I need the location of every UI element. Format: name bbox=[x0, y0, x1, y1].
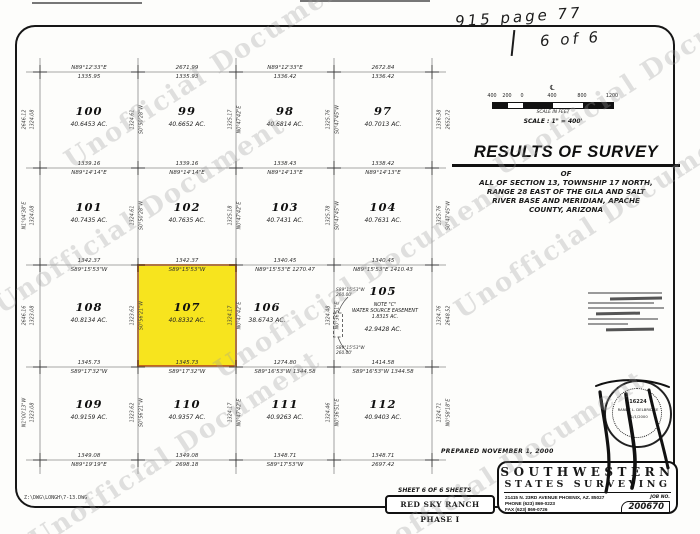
seal-date: 11/1/2000 bbox=[606, 414, 670, 419]
scale-ratio-label: SCALE : 1" = 400' bbox=[492, 118, 614, 125]
edge-label: 1324.76 bbox=[438, 293, 443, 339]
interior-line-label: N0°47'42"E bbox=[238, 293, 243, 339]
boundary-label: 1348.712697.42 bbox=[338, 452, 428, 469]
interior-line-label: 1325.17 bbox=[229, 97, 234, 143]
lot-97: 9740.7013 AC. bbox=[338, 104, 428, 128]
prepared-date-note: PREPARED NOVEMBER 1, 2000 bbox=[441, 448, 554, 455]
interior-line-label: N0°47'42"E bbox=[238, 97, 243, 143]
edge-label: 1323.08 bbox=[31, 390, 36, 436]
boundary-label: 1348.71S89°17'53"W bbox=[240, 452, 330, 469]
seal-inner-ring bbox=[612, 388, 662, 438]
edge-label: 2646.16 bbox=[23, 293, 28, 339]
interior-line-label: 1325.78 bbox=[327, 193, 332, 239]
surveyor-seal: 16224 RANDY L. DELBRIDGE 11/1/2000 bbox=[604, 380, 672, 448]
boundary-label: 1342.37S89°15'53"W bbox=[44, 257, 134, 274]
seal-name: RANDY L. DELBRIDGE bbox=[606, 407, 670, 412]
lot-112: 11240.9403 AC. bbox=[338, 397, 428, 421]
interior-line-label: N0°47'42"E bbox=[238, 390, 243, 436]
firm-name-line2: STATES SURVEYING bbox=[499, 479, 676, 490]
lot-99: 9940.6652 AC. bbox=[142, 104, 232, 128]
boundary-label: N89°12'33"E1336.42 bbox=[240, 64, 330, 81]
lot-107-highlighted: 10740.8332 AC. bbox=[142, 300, 232, 324]
interior-line-label: 1323.62 bbox=[131, 293, 136, 339]
recorder-certification-block bbox=[588, 292, 670, 333]
lot-111: 11140.9263 AC. bbox=[240, 397, 330, 421]
edge-label: N1°04'38"E bbox=[23, 193, 28, 239]
edge-label: 2646.12 bbox=[23, 97, 28, 143]
interior-line-label: 1323.62 bbox=[131, 390, 136, 436]
boundary-label: 1342.37S89°15'53"W bbox=[142, 257, 232, 274]
job-number-value: 200670 bbox=[621, 501, 671, 513]
scale-tick: 200 bbox=[502, 94, 511, 99]
lot-103: 10340.7431 AC. bbox=[240, 200, 330, 224]
survey-description-line: ALL OF SECTION 13, TOWNSHIP 17 NORTH, bbox=[452, 178, 680, 187]
interior-line-label: S0°56'21"W bbox=[140, 293, 145, 339]
boundary-label: 1414.58S89°16'53"W 1344.58 bbox=[338, 359, 428, 376]
boundary-label: 1345.73S89°17'32"W bbox=[44, 359, 134, 376]
firm-fax: FAX (623) 869-0726 bbox=[505, 507, 604, 513]
interior-line-label: 1324.17 bbox=[229, 293, 234, 339]
project-title-box: RED SKY RANCH PHASE I bbox=[385, 495, 495, 514]
boundary-label: 2672.841336.42 bbox=[338, 64, 428, 81]
interior-line-label: 1324.61 bbox=[131, 97, 136, 143]
firm-name-line1: SOUTHWESTERN bbox=[499, 465, 676, 479]
boundary-label: 1340.45N89°15'53"E 1410.43 bbox=[338, 257, 428, 274]
scale-tick: 1200 bbox=[606, 94, 618, 99]
scale-units-label: SCALE IN FEET bbox=[492, 110, 614, 115]
edge-label: N1°00'13"W bbox=[23, 390, 28, 436]
scale-bar-graphic bbox=[492, 102, 614, 109]
lot-105-acreage: 42.9428 AC. bbox=[353, 326, 413, 333]
seal-license-number: 16224 bbox=[606, 399, 670, 405]
interior-line-label: N0°36'51"E bbox=[336, 293, 341, 339]
interior-line-label: S0°50'28"W bbox=[140, 97, 145, 143]
edge-label: N0°58'18"E bbox=[447, 390, 452, 436]
edge-label: S0°47'45"W bbox=[447, 193, 452, 239]
easement-call-top: S89°15'53"W260.00' bbox=[336, 288, 378, 298]
edge-label: 1324.08 bbox=[31, 97, 36, 143]
interior-line-label: 1324.46 bbox=[327, 390, 332, 436]
survey-header: RESULTS OF SURVEY OF ALL OF SECTION 13, … bbox=[452, 143, 680, 214]
scale-tick: 800 bbox=[577, 94, 586, 99]
survey-description-line: RIVER BASE AND MERIDIAN, APACHE bbox=[452, 196, 680, 205]
job-number-block: JOB NO. 200670 bbox=[621, 495, 671, 513]
scale-tick: 0 bbox=[520, 94, 523, 99]
boundary-label: 2671.991335.93 bbox=[142, 64, 232, 81]
firm-divider bbox=[504, 492, 671, 494]
firm-title-box: SOUTHWESTERN STATES SURVEYING 21415 N. 2… bbox=[497, 461, 678, 514]
edge-label: 2652.72 bbox=[447, 97, 452, 143]
scan-artifact-line bbox=[32, 2, 142, 4]
survey-title: RESULTS OF SURVEY bbox=[452, 143, 680, 167]
survey-of-label: OF bbox=[452, 170, 680, 178]
scanned-survey-sheet: 915 page 77 6 of 6 N89°12'33"E1335.95 26… bbox=[0, 0, 700, 534]
edge-label: 1324.71 bbox=[438, 390, 443, 436]
cad-file-path: Z:\DWG\LONGH\7-13.DWG bbox=[24, 495, 87, 501]
edge-label: 1325.76 bbox=[438, 193, 443, 239]
lot-98: 9840.6814 AC. bbox=[240, 104, 330, 128]
boundary-label: 1349.082698.18 bbox=[142, 452, 232, 469]
interior-line-label: S0°47'45"W bbox=[336, 193, 341, 239]
interior-line-label: 1325.76 bbox=[327, 97, 332, 143]
interior-line-label: S0°56'21"W bbox=[140, 390, 145, 436]
easement-call-bottom: S89°15'53"W260.00' bbox=[336, 346, 378, 356]
lot-100: 10040.6453 AC. bbox=[44, 104, 134, 128]
scale-tick: 400 bbox=[487, 94, 496, 99]
lot-106: 10638.6743 AC. bbox=[222, 300, 312, 324]
boundary-label: 1274.80S89°16'53"W 1344.58 bbox=[240, 359, 330, 376]
scale-tick: 400 bbox=[547, 94, 556, 99]
interior-line-label: 1324.17 bbox=[229, 390, 234, 436]
firm-contact-info: 21415 N. 23RD AVENUE PHOENIX, AZ. 85027 … bbox=[505, 495, 604, 513]
lot-110: 11040.9357 AC. bbox=[142, 397, 232, 421]
lot-104: 10440.7631 AC. bbox=[338, 200, 428, 224]
firm-address: 21415 N. 23RD AVENUE PHOENIX, AZ. 85027 bbox=[505, 495, 604, 501]
edge-label: 2648.52 bbox=[447, 293, 452, 339]
edge-label: 1323.08 bbox=[31, 293, 36, 339]
interior-line-label: 1324.48 bbox=[327, 293, 332, 339]
sheet-count-label: SHEET 6 OF 6 SHEETS bbox=[398, 487, 472, 494]
lot-101: 10140.7435 AC. bbox=[44, 200, 134, 224]
edge-label: 1336.38 bbox=[438, 97, 443, 143]
note-c-water-source-easement: NOTE "C" WATER SOURCE EASEMENT 1.8315 AC… bbox=[345, 303, 425, 320]
interior-line-label: N0°47'42"E bbox=[238, 193, 243, 239]
lot-108: 10840.8134 AC. bbox=[44, 300, 134, 324]
lot-102: 10240.7635 AC. bbox=[142, 200, 232, 224]
boundary-label: 1339.16N89°14'14"E bbox=[44, 160, 134, 177]
boundary-label: 1349.08N89°19'19"E bbox=[44, 452, 134, 469]
interior-line-label: S0°47'45"W bbox=[336, 97, 341, 143]
interior-line-label: N0°36'51"E bbox=[336, 390, 341, 436]
survey-description-line: RANGE 28 EAST OF THE GILA AND SALT bbox=[452, 187, 680, 196]
boundary-label: N89°12'33"E1335.95 bbox=[44, 64, 134, 81]
interior-line-label: S0°50'28"W bbox=[140, 193, 145, 239]
interior-line-label: 1325.18 bbox=[229, 193, 234, 239]
boundary-label: 1345.73S89°17'32"W bbox=[142, 359, 232, 376]
interior-line-label: 1324.61 bbox=[131, 193, 136, 239]
boundary-label: 1338.42N89°14'13"E bbox=[338, 160, 428, 177]
boundary-label: 1338.43N89°14'13"E bbox=[240, 160, 330, 177]
edge-label: 1324.08 bbox=[31, 193, 36, 239]
centerline-symbol: ℄ bbox=[550, 84, 555, 92]
boundary-label: 1339.16N89°14'14"E bbox=[142, 160, 232, 177]
scan-artifact-line bbox=[300, 0, 430, 2]
survey-description-line: COUNTY, ARIZONA bbox=[452, 205, 680, 214]
job-number-label: JOB NO. bbox=[621, 495, 671, 500]
lot-109: 10940.9159 AC. bbox=[44, 397, 134, 421]
boundary-label: 1340.45N89°15'53"E 1270.47 bbox=[240, 257, 330, 274]
